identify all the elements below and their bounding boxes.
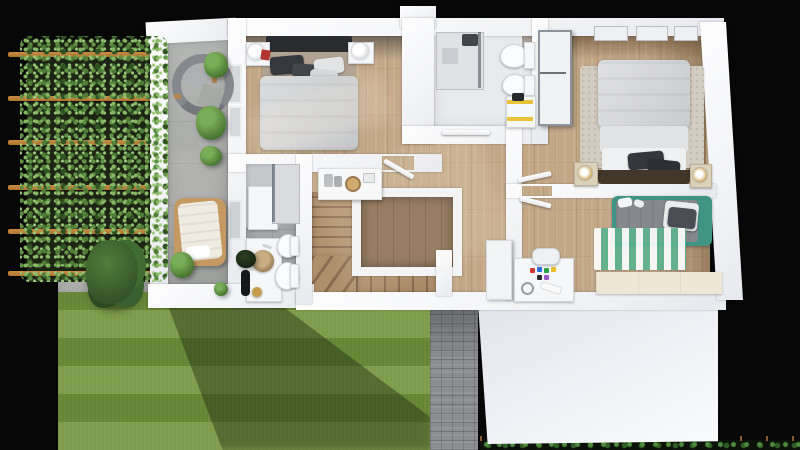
black-planter-leaves (236, 250, 256, 268)
black-planter-vase (241, 270, 250, 296)
window-bed1-b (228, 106, 242, 138)
desk-marker-purple (544, 275, 549, 280)
wardrobe-tall (538, 30, 572, 126)
garage-roof (478, 304, 718, 444)
wall-stair-stub (436, 250, 452, 296)
skylight-a (594, 26, 628, 41)
window-bath2 (228, 200, 242, 240)
console-jar-a (324, 174, 333, 187)
desk-marker-red (530, 268, 535, 273)
wall-bath-bottom (402, 126, 548, 144)
desk-marker-green (544, 268, 549, 273)
doorway-kids (522, 186, 552, 196)
gold-lamp-left (578, 166, 592, 180)
shower-top-glass (478, 32, 481, 88)
bidet-left-tank (290, 236, 299, 256)
kids-sideboard (596, 272, 722, 294)
water-heater-strap-b (507, 117, 533, 121)
skylight-c (674, 26, 698, 41)
kids-striped-rug (594, 228, 686, 270)
bed2-duvet (598, 60, 690, 128)
gold-stool (252, 287, 262, 297)
kids-chair (532, 248, 560, 265)
terrace-plant-c (200, 146, 222, 166)
table-lamp-bed1-right (352, 43, 368, 59)
toilet-left-tank (290, 264, 299, 288)
bidet-top-tank (524, 75, 535, 96)
terrace-plant-a (204, 52, 228, 78)
skylight-b (636, 26, 668, 41)
terrace-plant-d (170, 252, 194, 278)
kids-pillow-dark (667, 207, 697, 230)
floor-plan-render (0, 0, 800, 450)
terrace-plant-b (196, 106, 226, 140)
red-books (260, 49, 270, 60)
water-heater-cap (512, 93, 524, 101)
terrace-plant-e (214, 282, 228, 296)
chair-foot-a (174, 94, 181, 99)
door-bathroom-top (442, 130, 490, 135)
bed1-duvet (260, 76, 358, 150)
gold-lamp-right (693, 168, 707, 182)
paver-path (430, 296, 478, 450)
stairs-upper-flight (312, 192, 356, 258)
kids-closet (486, 240, 512, 300)
desk-marker-yellow (551, 267, 556, 272)
desk-marker-black (537, 275, 542, 280)
shower-left (272, 164, 300, 224)
wardrobe-seam (540, 72, 566, 74)
console-jar-b (334, 176, 342, 187)
desk-marker-blue (537, 267, 542, 272)
shower-left-glass (272, 164, 275, 222)
console-basket (345, 176, 361, 192)
shower-top-plate (442, 48, 458, 64)
desk-ring-toy (521, 282, 534, 295)
shower-head (462, 34, 478, 46)
thermostat-panel (363, 173, 375, 183)
bed2-headboard (598, 170, 690, 184)
toilet-top-tank (524, 42, 535, 69)
